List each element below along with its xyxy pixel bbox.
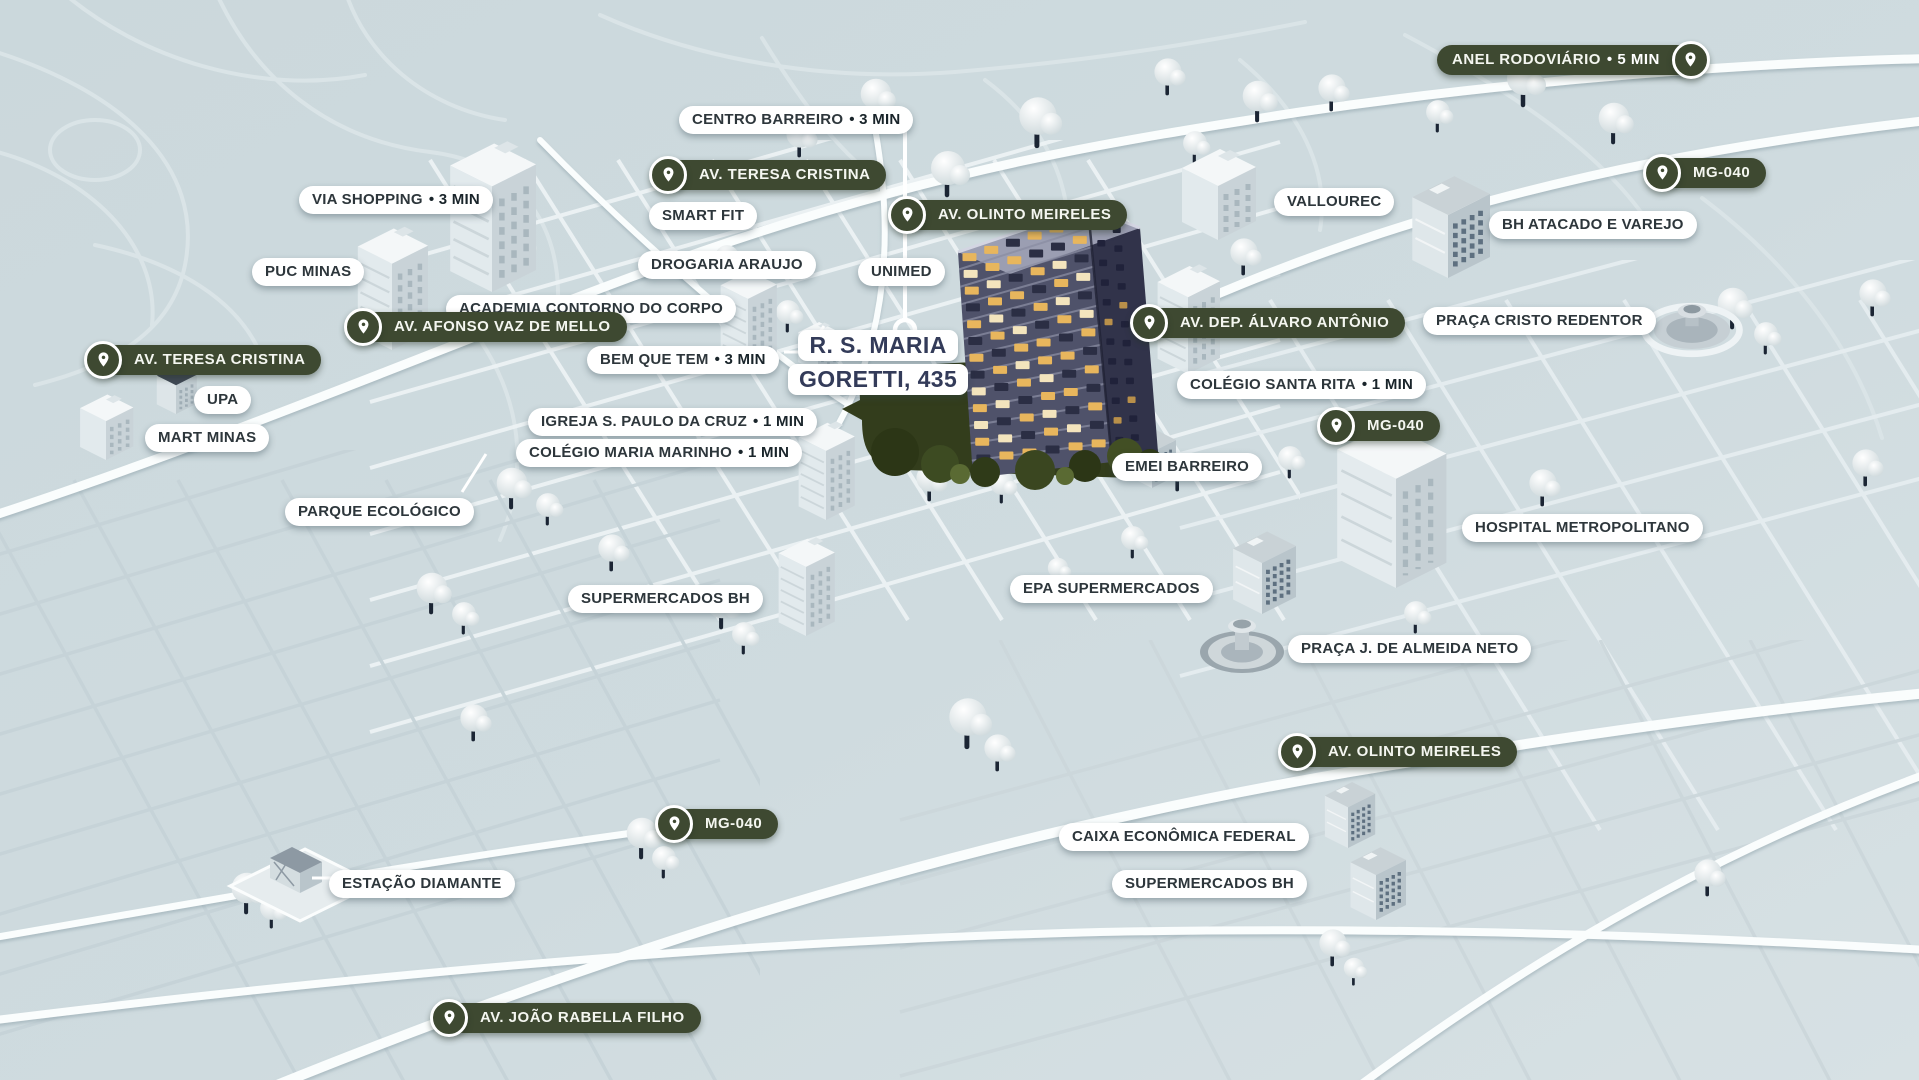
location-pin-icon [1289,743,1306,760]
poi-callout-bh-atacado-e-varejo: BH ATACADO E VAREJO [1489,205,1697,244]
label-time-badge: • 1 MIN [1362,376,1413,394]
location-pin-icon [1654,164,1671,181]
label-text: UNIMED [871,263,932,281]
label-text: PARQUE ECOLÓGICO [298,503,461,521]
location-pin-icon [441,1009,458,1026]
map-canvas: ANEL RODOVIÁRIO• 5 MINCENTRO BARREIRO• 3… [0,0,1919,1080]
label-pill: UPA [194,386,251,414]
label-time-badge: • 3 MIN [715,351,766,369]
label-pill: PRAÇA J. DE ALMEIDA NETO [1288,635,1531,663]
label-time-badge: • 1 MIN [753,413,804,431]
label-text: CAIXA ECONÔMICA FEDERAL [1072,828,1296,846]
label-text: AV. AFONSO VAZ DE MELLO [394,318,611,336]
map-pin-marker [649,156,687,194]
road-pin-mg-040-nordeste: MG-040 [1643,153,1766,192]
label-pill: BEM QUE TEM• 3 MIN [587,346,779,374]
label-text: MG-040 [705,815,762,833]
label-text: AV. JOÃO RABELLA FILHO [480,1009,685,1027]
label-text: HOSPITAL METROPOLITANO [1475,519,1690,537]
location-pin-icon [95,351,112,368]
label-pill: ESTAÇÃO DIAMANTE [329,870,515,898]
label-text: EMEI BARREIRO [1125,458,1249,476]
label-text: SUPERMERCADOS BH [581,590,750,608]
location-pin-icon [899,206,916,223]
labels-layer: ANEL RODOVIÁRIO• 5 MINCENTRO BARREIRO• 3… [0,0,1919,1080]
road-pin-av-teresa-cristina-norte: AV. TERESA CRISTINA [649,155,886,194]
label-pill: ANEL RODOVIÁRIO• 5 MIN [1437,45,1692,75]
map-pin-marker [655,805,693,843]
poi-callout-hospital-metropolitano: HOSPITAL METROPOLITANO [1462,508,1703,547]
location-pin-icon [1682,51,1699,68]
label-text: VIA SHOPPING [312,191,423,209]
property-address-line1: R. S. MARIA [798,330,957,361]
road-pin-mg-040-sul: MG-040 [655,804,778,843]
map-pin-marker [1643,154,1681,192]
label-pill: MART MINAS [145,424,269,452]
road-pin-av-dep-alvaro-antonio: AV. DEP. ÁLVARO ANTÔNIO [1130,303,1405,342]
label-pill: PARQUE ECOLÓGICO [285,498,474,526]
poi-callout-praca-cristo-redentor: PRAÇA CRISTO REDENTOR [1423,301,1656,340]
road-pin-av-afonso-vaz-de-mello: AV. AFONSO VAZ DE MELLO [344,307,627,346]
label-pill: SMART FIT [649,202,757,230]
poi-callout-supermercados-bh-sul: SUPERMERCADOS BH [1112,864,1307,903]
map-pin-marker [1317,407,1355,445]
label-text: SUPERMERCADOS BH [1125,875,1294,893]
label-text: PRAÇA CRISTO REDENTOR [1436,312,1643,330]
location-pin-icon [355,318,372,335]
label-text: DROGARIA ARAUJO [651,256,803,274]
label-text: BH ATACADO E VAREJO [1502,216,1684,234]
label-pill: AV. AFONSO VAZ DE MELLO [362,312,627,342]
label-pill: CAIXA ECONÔMICA FEDERAL [1059,823,1309,851]
label-pill: SUPERMERCADOS BH [1112,870,1307,898]
poi-callout-caixa-economica-federal: CAIXA ECONÔMICA FEDERAL [1059,817,1309,856]
road-pin-av-olinto-meireles-sul: AV. OLINTO MEIRELES [1278,732,1517,771]
label-text: MG-040 [1693,164,1750,182]
label-pill: BH ATACADO E VAREJO [1489,211,1697,239]
label-pill: EMEI BARREIRO [1112,453,1262,481]
label-pill: AV. OLINTO MEIRELES [1296,737,1517,767]
label-text: AV. TERESA CRISTINA [699,166,870,184]
label-time-badge: • 3 MIN [429,191,480,209]
location-pin-icon [1141,314,1158,331]
poi-callout-centro-barreiro: CENTRO BARREIRO• 3 MIN [679,100,913,139]
poi-callout-mart-minas: MART MINAS [145,418,269,457]
label-time-badge: • 5 MIN [1607,51,1660,69]
road-pin-anel-rodoviario: ANEL RODOVIÁRIO• 5 MIN [1437,40,1710,79]
poi-callout-via-shopping: VIA SHOPPING• 3 MIN [299,180,493,219]
label-pill: AV. DEP. ÁLVARO ANTÔNIO [1148,308,1405,338]
poi-callout-unimed: UNIMED [858,252,945,291]
label-pill: VIA SHOPPING• 3 MIN [299,186,493,214]
poi-callout-epa-supermercados: EPA SUPERMERCADOS [1010,569,1213,608]
label-text: AV. TERESA CRISTINA [134,351,305,369]
poi-callout-bem-que-tem: BEM QUE TEM• 3 MIN [587,340,779,379]
poi-callout-parque-ecologico: PARQUE ECOLÓGICO [285,492,474,531]
label-text: AV. OLINTO MEIRELES [938,206,1111,224]
label-time-badge: • 1 MIN [738,444,789,462]
label-text: PRAÇA J. DE ALMEIDA NETO [1301,640,1518,658]
label-text: COLÉGIO MARIA MARINHO [529,444,732,462]
poi-callout-praca-j-de-almeida-neto: PRAÇA J. DE ALMEIDA NETO [1288,629,1531,668]
location-pin-icon [660,166,677,183]
poi-callout-estacao-diamante: ESTAÇÃO DIAMANTE [329,864,515,903]
label-pill: VALLOUREC [1274,188,1394,216]
label-text: EPA SUPERMERCADOS [1023,580,1200,598]
road-pin-av-teresa-cristina-oeste: AV. TERESA CRISTINA [84,340,321,379]
poi-callout-smart-fit: SMART FIT [649,196,757,235]
label-text: PUC MINAS [265,263,351,281]
road-pin-mg-040-leste: MG-040 [1317,406,1440,445]
map-pin-marker [888,196,926,234]
poi-callout-colegio-santa-rita: COLÉGIO SANTA RITA• 1 MIN [1177,365,1426,404]
poi-callout-colegio-maria-marinho: COLÉGIO MARIA MARINHO• 1 MIN [516,433,802,472]
label-text: CENTRO BARREIRO [692,111,843,129]
poi-callout-drogaria-araujo: DROGARIA ARAUJO [638,245,816,284]
poi-callout-upa: UPA [194,380,251,419]
label-pill: SUPERMERCADOS BH [568,585,763,613]
label-pill: AV. JOÃO RABELLA FILHO [448,1003,701,1033]
label-text: IGREJA S. PAULO DA CRUZ [541,413,747,431]
label-pill: COLÉGIO MARIA MARINHO• 1 MIN [516,439,802,467]
label-pill: EPA SUPERMERCADOS [1010,575,1213,603]
label-pill: PUC MINAS [252,258,364,286]
label-pill: PRAÇA CRISTO REDENTOR [1423,307,1656,335]
label-text: AV. OLINTO MEIRELES [1328,743,1501,761]
label-text: MART MINAS [158,429,256,447]
map-pin-marker [1130,304,1168,342]
property-address-line2: GORETTI, 435 [788,364,968,395]
map-pin-marker [1278,733,1316,771]
label-pill: IGREJA S. PAULO DA CRUZ• 1 MIN [528,408,817,436]
label-text: COLÉGIO SANTA RITA [1190,376,1356,394]
poi-callout-vallourec: VALLOUREC [1274,182,1394,221]
poi-callout-supermercados-bh-centro: SUPERMERCADOS BH [568,579,763,618]
road-pin-av-olinto-meireles-norte: AV. OLINTO MEIRELES [888,195,1127,234]
label-text: UPA [207,391,238,409]
label-text: ANEL RODOVIÁRIO [1452,51,1601,69]
label-pill: DROGARIA ARAUJO [638,251,816,279]
label-pill: COLÉGIO SANTA RITA• 1 MIN [1177,371,1426,399]
label-pill: AV. OLINTO MEIRELES [906,200,1127,230]
label-text: AV. DEP. ÁLVARO ANTÔNIO [1180,314,1389,332]
label-pill: UNIMED [858,258,945,286]
poi-callout-emei-barreiro: EMEI BARREIRO [1112,447,1262,486]
map-pin-marker [344,308,382,346]
label-pill: AV. TERESA CRISTINA [667,160,886,190]
label-time-badge: • 3 MIN [849,111,900,129]
location-pin-icon [1328,417,1345,434]
label-text: VALLOUREC [1287,193,1381,211]
label-pill: CENTRO BARREIRO• 3 MIN [679,106,913,134]
map-pin-marker [1672,41,1710,79]
label-pill: HOSPITAL METROPOLITANO [1462,514,1703,542]
label-text: MG-040 [1367,417,1424,435]
location-pin-icon [666,815,683,832]
map-pin-marker [430,999,468,1037]
poi-callout-puc-minas: PUC MINAS [252,252,364,291]
label-pill: AV. TERESA CRISTINA [102,345,321,375]
label-text: BEM QUE TEM [600,351,709,369]
property-address-label: R. S. MARIA GORETTI, 435 [788,330,968,395]
label-text: SMART FIT [662,207,744,225]
map-pin-marker [84,341,122,379]
label-text: ESTAÇÃO DIAMANTE [342,875,502,893]
road-pin-av-joao-rabella-filho: AV. JOÃO RABELLA FILHO [430,998,701,1037]
